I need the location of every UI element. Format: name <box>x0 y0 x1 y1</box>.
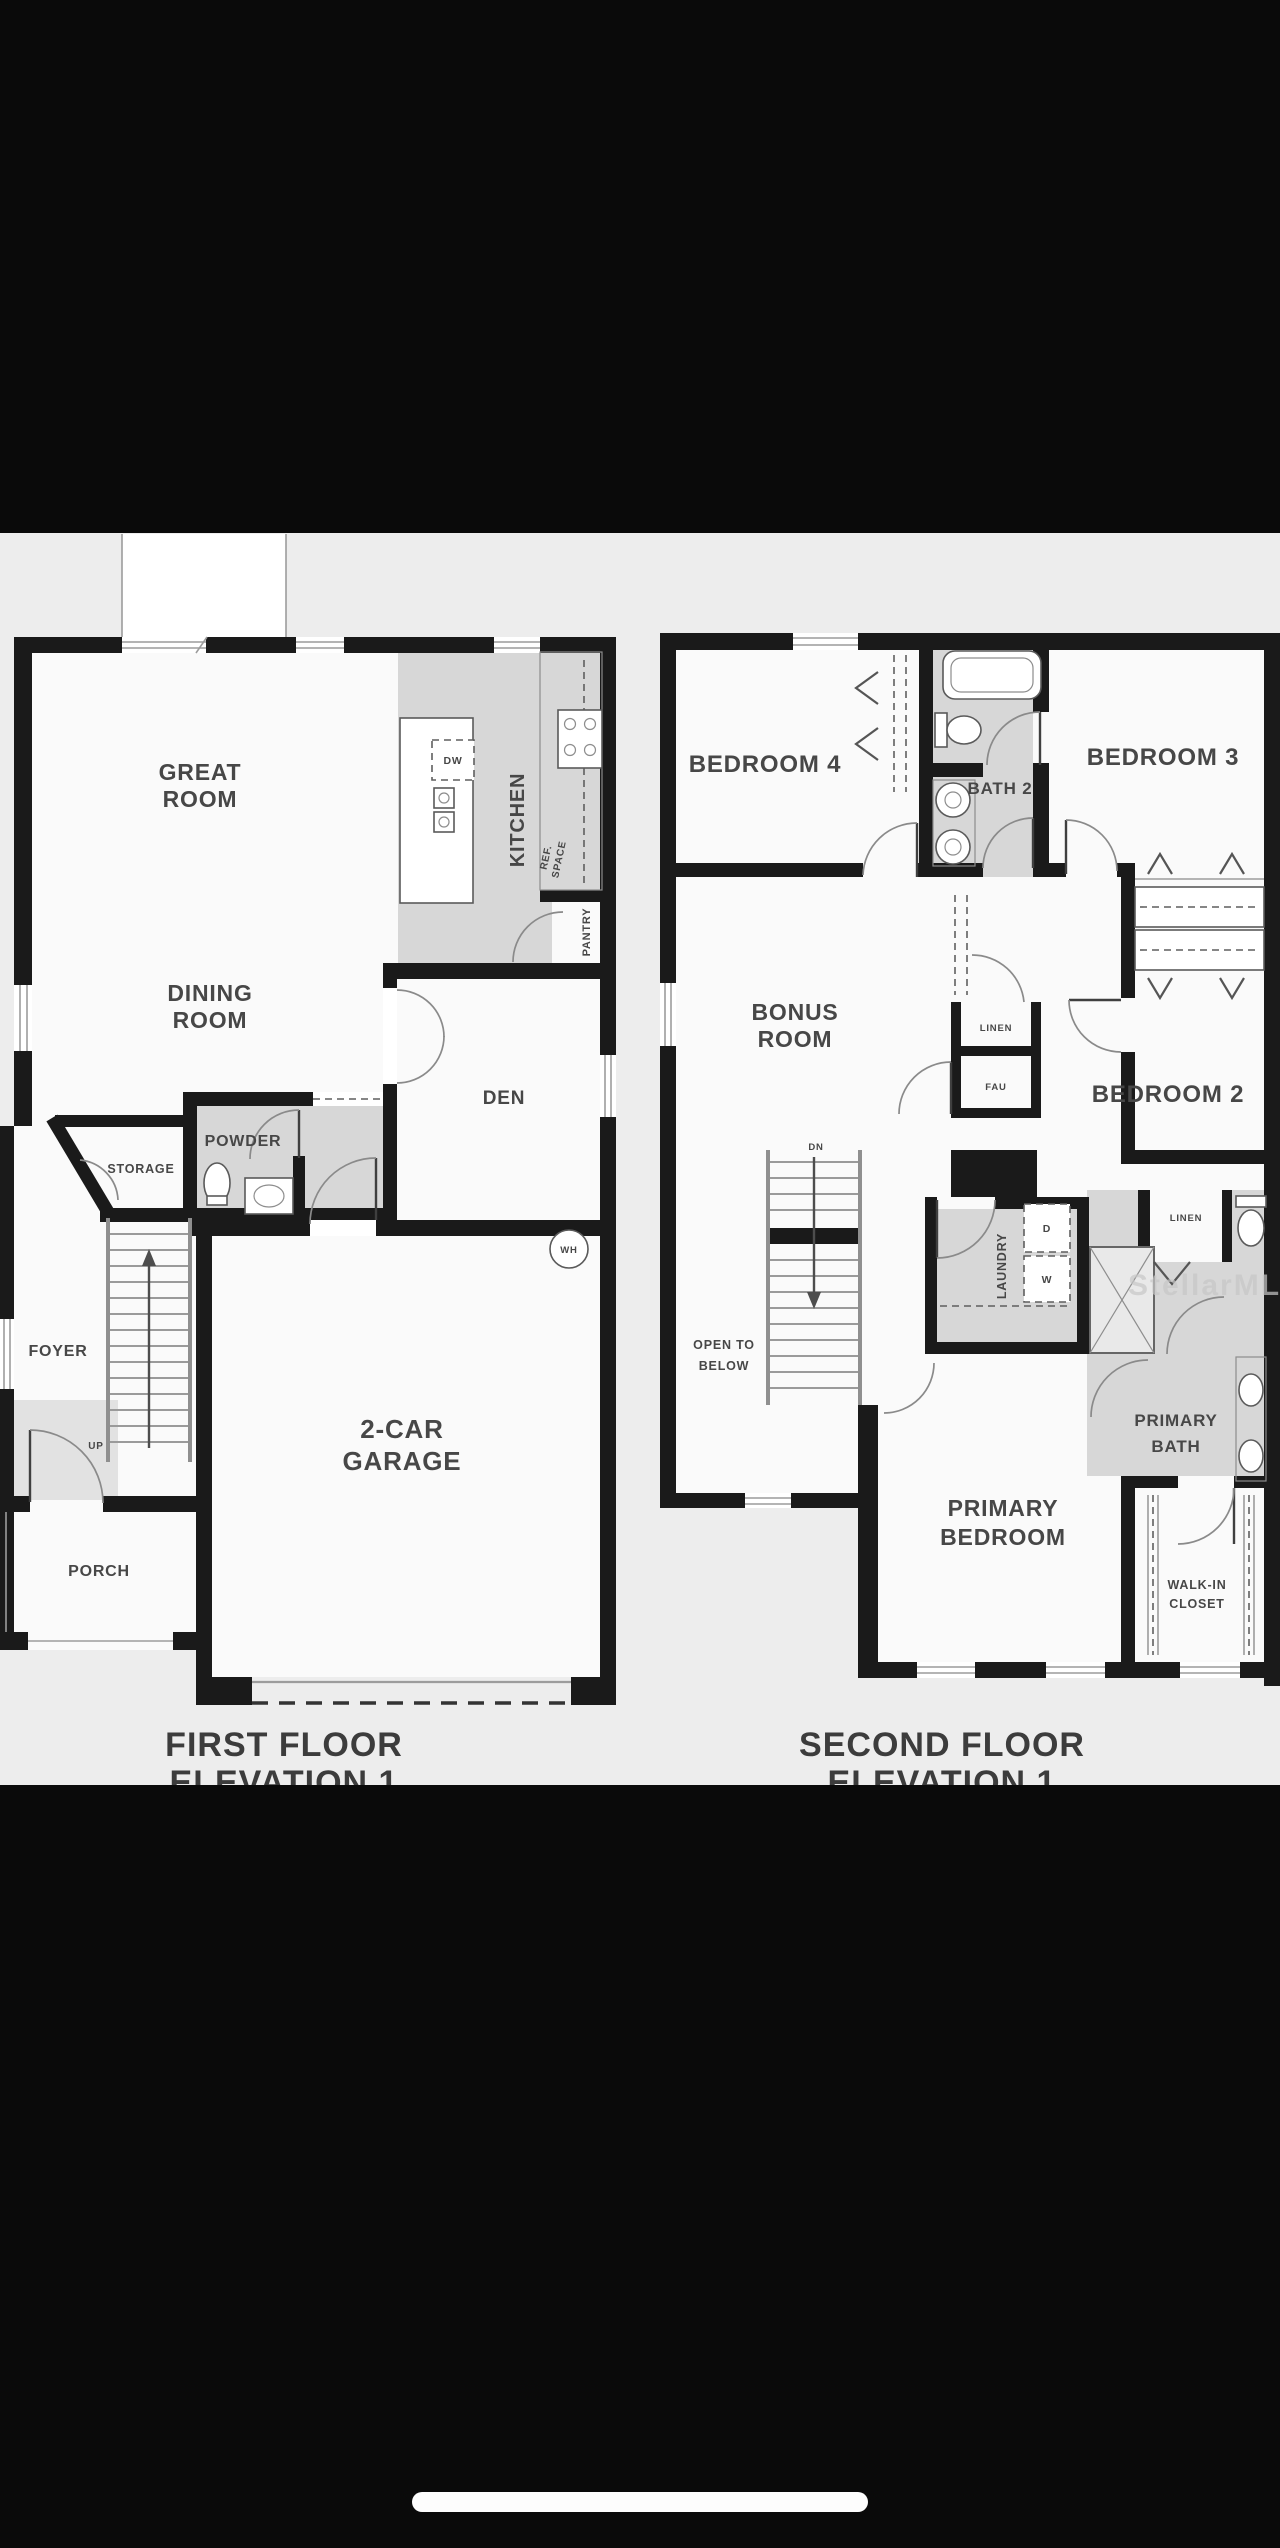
bonus-room-label2: ROOM <box>758 1026 833 1052</box>
wh-label: WH <box>560 1245 577 1256</box>
bath2-sink-1 <box>936 783 970 817</box>
powder-label: POWDER <box>205 1133 282 1150</box>
primary-sink-2 <box>1239 1440 1263 1472</box>
kitchen-label: KITCHEN <box>507 773 529 868</box>
bottom-letterbox <box>0 1785 1280 2548</box>
bedroom2-label: BEDROOM 2 <box>1092 1081 1245 1108</box>
open-to-below-label2: BELOW <box>699 1359 750 1373</box>
bath2-toilet <box>935 713 947 747</box>
porch-label: PORCH <box>68 1563 130 1580</box>
dining-room-label: DINING <box>167 980 252 1006</box>
den-label: DEN <box>483 1088 526 1109</box>
fau-label: FAU <box>985 1082 1006 1093</box>
top-letterbox <box>0 0 1280 533</box>
primary-bedroom-label: PRIMARY <box>948 1495 1059 1521</box>
walkin-closet-label: WALK-IN <box>1167 1578 1226 1592</box>
washer-label: W <box>1042 1274 1053 1286</box>
powder-sink <box>245 1178 293 1214</box>
great-room-label: GREAT <box>159 759 242 785</box>
linen-bath-label: LINEN <box>1170 1213 1203 1224</box>
first-floor-title: FIRST FLOOR <box>165 1726 403 1764</box>
open-to-below-label: OPEN TO <box>693 1338 755 1352</box>
island-sink <box>434 788 454 808</box>
stove <box>558 710 602 768</box>
floorplan-image: GREAT ROOM DINING ROOM KITCHEN DW REF. S… <box>0 0 1280 2548</box>
bath2-label: BATH 2 <box>968 779 1033 798</box>
laundry-label: LAUNDRY <box>995 1233 1009 1299</box>
walkin-closet-label2: CLOSET <box>1169 1597 1225 1611</box>
up-label: UP <box>88 1441 104 1452</box>
great-room-label2: ROOM <box>163 786 238 812</box>
foyer-label: FOYER <box>28 1343 87 1360</box>
garage-label2: GARAGE <box>343 1446 462 1476</box>
mls-watermark: StellarMLS <box>1128 1269 1280 1302</box>
second-floor-title: SECOND FLOOR <box>799 1726 1085 1764</box>
bath2-sink-2 <box>936 830 970 864</box>
pantry-label: PANTRY <box>581 908 593 957</box>
linen-hall-label: LINEN <box>980 1023 1013 1034</box>
primary-toilet <box>1236 1196 1266 1207</box>
primary-bedroom-label2: BEDROOM <box>940 1524 1066 1550</box>
primary-bath-label: PRIMARY <box>1134 1411 1217 1430</box>
storage-label: STORAGE <box>107 1162 174 1176</box>
dishwasher-label: DW <box>443 755 462 767</box>
dn-label: DN <box>808 1142 823 1153</box>
first-floor-plan: GREAT ROOM DINING ROOM KITCHEN DW REF. S… <box>0 637 616 1705</box>
primary-bath-label2: BATH <box>1151 1437 1200 1456</box>
primary-sink-1 <box>1239 1374 1263 1406</box>
garage-label: 2-CAR <box>360 1414 443 1444</box>
photo-viewer: GREAT ROOM DINING ROOM KITCHEN DW REF. S… <box>0 0 1280 2548</box>
bedroom3-label: BEDROOM 3 <box>1087 744 1240 771</box>
second-floor-plan: BEDROOM 4 BATH 2 BEDROOM 3 BONUS ROOM LI… <box>660 633 1280 1686</box>
dining-room-label2: ROOM <box>173 1007 248 1033</box>
bonus-room-label: BONUS <box>751 999 838 1025</box>
dryer-label: D <box>1043 1223 1051 1235</box>
linen-bath-floor <box>1150 1190 1222 1262</box>
bedroom4-label: BEDROOM 4 <box>689 751 842 778</box>
home-indicator[interactable] <box>412 2492 868 2512</box>
